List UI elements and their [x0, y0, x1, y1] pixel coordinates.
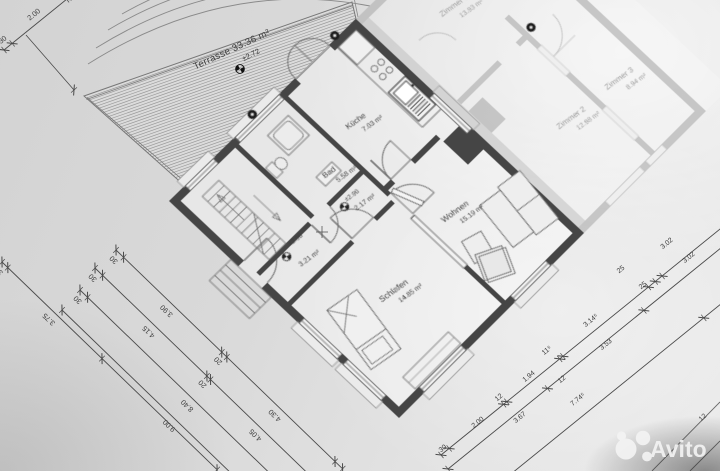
svg-text:Avito: Avito: [650, 436, 707, 462]
